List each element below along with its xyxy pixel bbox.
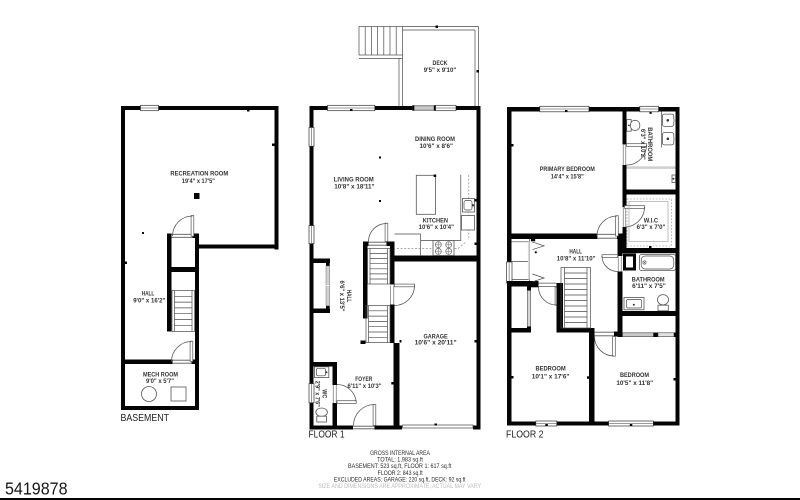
svg-text:6'6" x 13'5": 6'6" x 13'5" bbox=[338, 281, 345, 312]
svg-text:WC: WC bbox=[321, 389, 328, 398]
svg-text:5419878: 5419878 bbox=[5, 479, 68, 499]
svg-text:10'5" x 11'8": 10'5" x 11'8" bbox=[616, 380, 653, 387]
svg-text:BEDROOM: BEDROOM bbox=[535, 366, 565, 373]
svg-text:FLOOR 1: FLOOR 1 bbox=[309, 428, 345, 440]
svg-text:9'0" x 16'2": 9'0" x 16'2" bbox=[133, 297, 165, 304]
svg-text:BASEMENT: BASEMENT bbox=[121, 412, 170, 424]
svg-text:RECREATION ROOM: RECREATION ROOM bbox=[170, 170, 228, 177]
svg-text:FOYER: FOYER bbox=[355, 376, 373, 383]
svg-text:6'3" x 10'2": 6'3" x 10'2" bbox=[639, 129, 646, 160]
svg-text:19'4" x 17'5": 19'4" x 17'5" bbox=[182, 178, 215, 185]
svg-text:10'6" x 20'11": 10'6" x 20'11" bbox=[415, 340, 457, 347]
svg-text:14'4" x 15'8": 14'4" x 15'8" bbox=[551, 174, 584, 181]
svg-text:6'3" x 7'0": 6'3" x 7'0" bbox=[637, 224, 666, 231]
svg-text:SIZE AND DIMENSIONS ARE APPROX: SIZE AND DIMENSIONS ARE APPROXIMATE, ACT… bbox=[318, 483, 481, 490]
svg-text:DINING ROOM: DINING ROOM bbox=[415, 136, 455, 143]
svg-text:10'1" x 17'6": 10'1" x 17'6" bbox=[532, 374, 570, 381]
svg-text:BEDROOM: BEDROOM bbox=[620, 372, 649, 379]
svg-text:10'8" x 11'10": 10'8" x 11'10" bbox=[557, 255, 596, 262]
svg-text:9'5" x 9'10": 9'5" x 9'10" bbox=[424, 67, 457, 74]
svg-text:HALL: HALL bbox=[345, 290, 352, 303]
svg-text:BATHROOM: BATHROOM bbox=[646, 127, 653, 161]
svg-text:HALL: HALL bbox=[142, 290, 155, 297]
svg-text:6'11" x 7'5": 6'11" x 7'5" bbox=[632, 283, 666, 290]
svg-text:DECK: DECK bbox=[433, 60, 448, 67]
svg-text:10'8" x 18'11": 10'8" x 18'11" bbox=[334, 183, 374, 190]
svg-text:6'11" x 10'3": 6'11" x 10'3" bbox=[348, 383, 382, 390]
svg-text:10'6" x 10'4": 10'6" x 10'4" bbox=[419, 224, 454, 231]
svg-text:9'0" x 5'7": 9'0" x 5'7" bbox=[146, 378, 174, 385]
svg-text:FLOOR 2: FLOOR 2 bbox=[506, 428, 544, 440]
svg-text:10'6" x 8'6": 10'6" x 8'6" bbox=[420, 143, 454, 150]
svg-text:2'9" x 7'6": 2'9" x 7'6" bbox=[314, 381, 321, 407]
svg-text:PRIMARY BEDROOM: PRIMARY BEDROOM bbox=[540, 166, 595, 173]
